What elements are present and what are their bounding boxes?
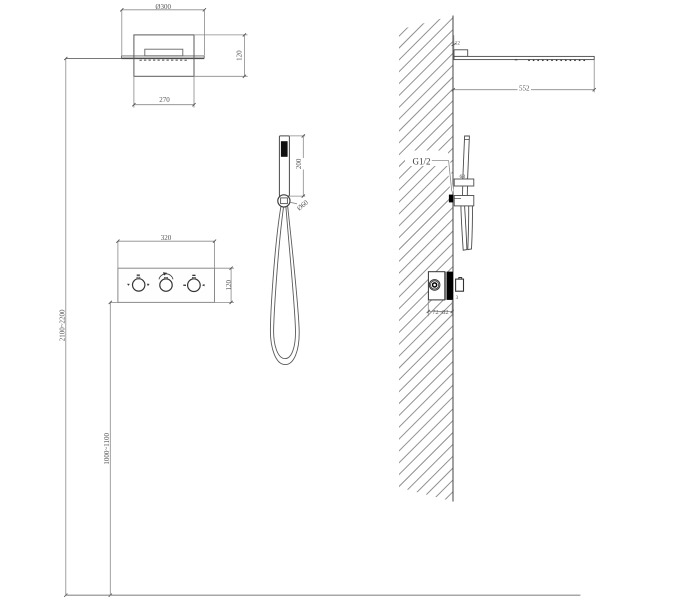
svg-text:12: 12	[455, 40, 461, 46]
svg-text:G1/2: G1/2	[413, 156, 431, 166]
svg-text:120: 120	[225, 280, 233, 291]
svg-text:2100~2200: 2100~2200	[58, 309, 66, 341]
svg-text:200: 200	[295, 158, 303, 169]
svg-text:270: 270	[159, 96, 170, 104]
svg-text:3: 3	[456, 295, 459, 301]
svg-text:Ø300: Ø300	[155, 3, 171, 11]
svg-text:320: 320	[161, 234, 172, 242]
svg-text:1000~1100: 1000~1100	[103, 433, 111, 465]
svg-text:68: 68	[460, 174, 466, 180]
svg-text:72~82: 72~82	[432, 309, 449, 316]
svg-text:552: 552	[519, 84, 530, 92]
svg-text:120: 120	[235, 50, 243, 61]
